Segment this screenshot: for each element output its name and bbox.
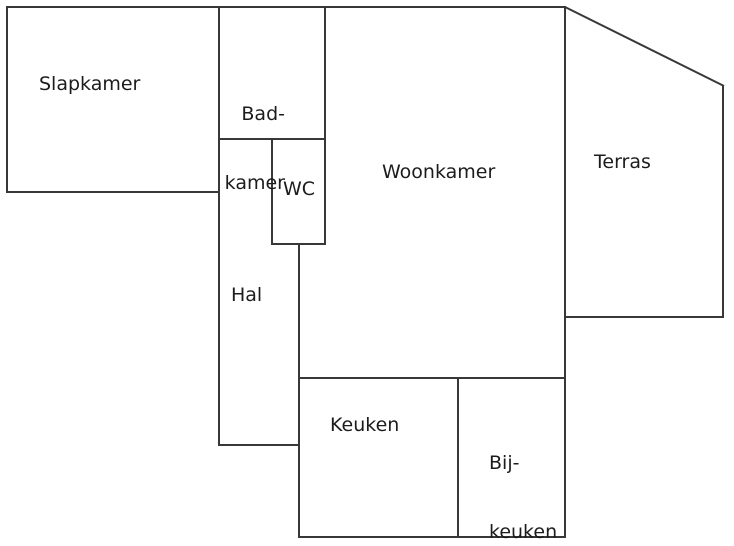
room-label-keuken: Keuken	[330, 414, 399, 437]
room-label-hal: Hal	[231, 284, 262, 307]
room-label-badkamer-line2: kamer	[225, 172, 285, 195]
room-label-terras: Terras	[594, 151, 651, 174]
room-label-badkamer-line1: Bad-	[225, 103, 285, 126]
room-label-bijkeuken-line1: Bij-	[489, 452, 557, 475]
room-label-slapkamer: Slapkamer	[39, 73, 140, 96]
wall-terras-roof-diagonal	[565, 7, 724, 86]
room-label-bijkeuken-line2: keuken	[489, 521, 557, 544]
room-label-badkamer: Bad- kamer	[225, 57, 285, 241]
room-label-bijkeuken: Bij- keuken	[489, 406, 557, 546]
floorplan: Slapkamer Bad- kamer WC Woonkamer Terras…	[0, 0, 734, 546]
room-label-wc: WC	[283, 178, 315, 201]
room-label-woonkamer: Woonkamer	[382, 161, 495, 184]
